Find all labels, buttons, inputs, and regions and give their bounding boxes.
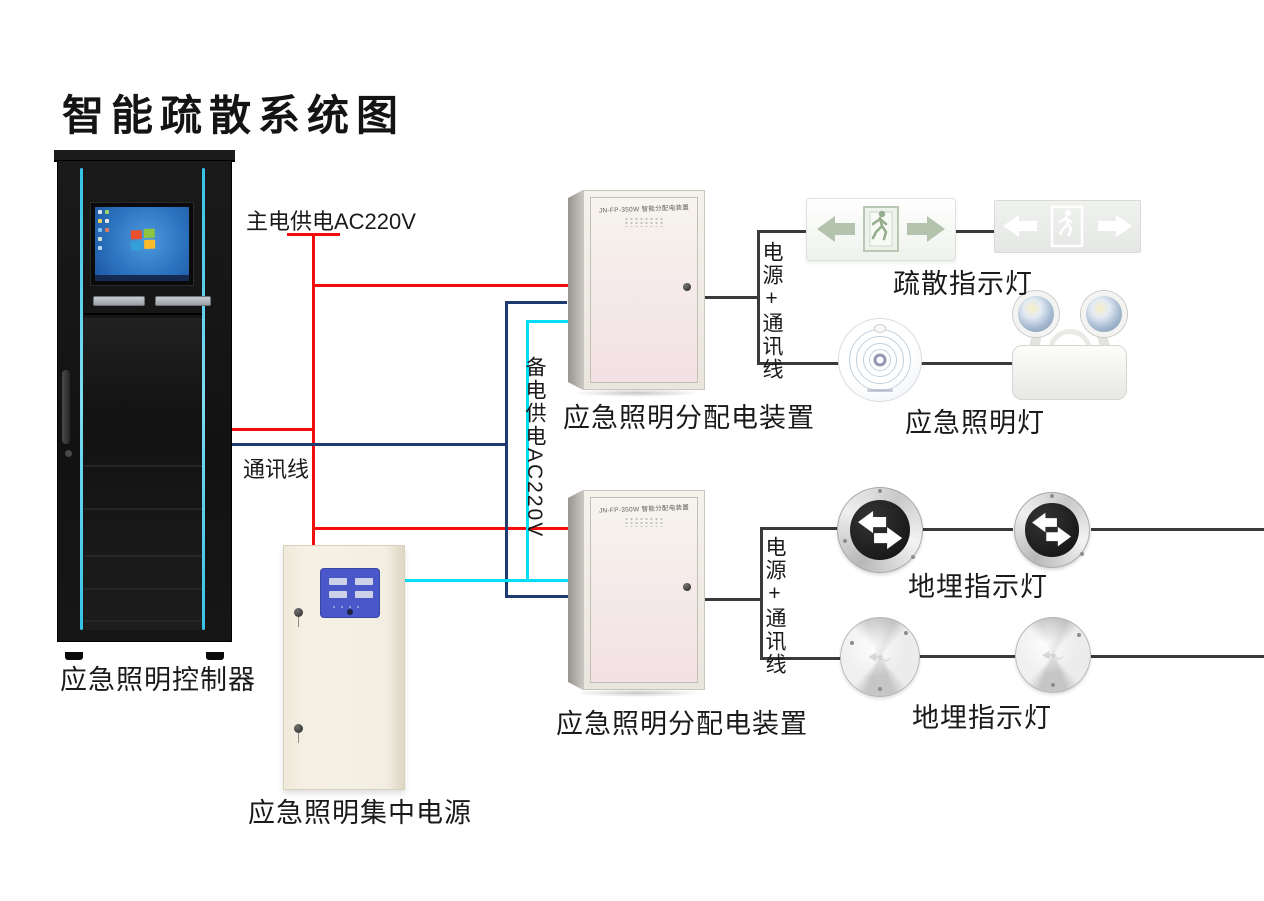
emergency-lighting-controller	[57, 150, 232, 652]
lamp-sensor	[874, 324, 887, 333]
distribution-box-2: JN-FP-350W 智能分配电装置	[568, 490, 705, 690]
emergency-lamps-label: 应急照明灯	[905, 401, 1045, 440]
windows-logo-icon	[131, 229, 157, 252]
cabinet-screen-bezel	[90, 202, 194, 286]
round-emergency-lamp	[838, 318, 922, 402]
lamp-center-hub	[874, 354, 887, 367]
lamp-brand-mark	[867, 389, 893, 392]
page-title: 智能疏散系统图	[62, 82, 405, 143]
exit-signs-label: 疏散指示灯	[893, 262, 1033, 301]
cabinet-glass-door	[83, 318, 203, 630]
exit-sign-2-graphic	[995, 201, 1140, 252]
ground-lights-row1-label: 地埋指示灯	[908, 565, 1048, 604]
running-man-icon	[1060, 210, 1071, 235]
distribution-box-1-label: 应急照明分配电装置	[563, 396, 815, 435]
main-power-wire-to-box1	[312, 284, 570, 287]
distribution-box-2-label: 应急照明分配电装置	[556, 702, 808, 741]
bus1-label: 电源+通讯线	[761, 241, 782, 381]
psu-button	[347, 609, 353, 615]
comm-wire-to-box2	[505, 595, 569, 598]
ground-light-steel-2	[1015, 617, 1091, 693]
ground2-continuation-line	[1091, 655, 1264, 658]
bus2-stem-line	[703, 598, 761, 601]
comm-wire-to-box1	[505, 301, 567, 304]
ground2-link-line	[919, 655, 1015, 658]
ground-light-steel-1	[840, 617, 920, 697]
bus2-to-ground1-line	[760, 527, 838, 530]
ground-light-arrow-1	[837, 487, 923, 573]
etched-arrow-icon	[1036, 640, 1069, 670]
exit-sign-2	[994, 200, 1141, 253]
ground-light-arrow-2	[1014, 492, 1090, 568]
backup-wire-to-box1	[526, 320, 568, 323]
psu-lock-lower	[294, 724, 303, 733]
ground1-link-line	[921, 528, 1013, 531]
main-power-wire-vertical	[312, 233, 315, 547]
controller-label: 应急照明控制器	[60, 658, 256, 697]
twin-emergency-lamp-body	[1012, 345, 1127, 400]
arrow-right-icon	[907, 216, 945, 242]
central-power-label: 应急照明集中电源	[248, 791, 472, 830]
comm-line-label: 通讯线	[243, 452, 309, 484]
cabinet-control-panel-left	[93, 296, 145, 306]
distribution-box-2-lock	[683, 583, 691, 591]
ground-arrows-icon	[1025, 503, 1078, 556]
distribution-box-1-lock	[683, 283, 691, 291]
exit-sign-link-line	[953, 230, 996, 233]
arrow-right-icon	[1098, 215, 1132, 237]
screen-taskbar	[95, 275, 189, 281]
bus1-to-exit-sign-line	[757, 230, 808, 233]
psu-display-panel	[320, 568, 380, 618]
psu-lock-upper	[294, 608, 303, 617]
comm-wire-vertical	[505, 301, 508, 598]
lamp-link-line	[917, 362, 1013, 365]
ground-arrows-icon	[850, 500, 910, 560]
cabinet-lock	[65, 450, 72, 457]
ground-lights-row2-label: 地埋指示灯	[912, 696, 1052, 735]
backup-power-label: 备电供电AC220V	[524, 356, 545, 538]
arrow-left-icon	[1003, 215, 1037, 237]
arrow-left-icon	[817, 216, 855, 242]
distribution-box-1: JN-FP-350W 智能分配电装置	[568, 190, 705, 390]
main-power-label: 主电供电AC220V	[246, 204, 416, 236]
cabinet-door-handle	[62, 370, 70, 444]
twin-lamp-head-right	[1081, 291, 1127, 337]
cabinet-control-panel-right	[155, 296, 211, 306]
main-power-wire-to-cabinet	[229, 428, 315, 431]
evacuation-system-diagram: 智能疏散系统图 主电供电AC220V 通讯线 备电供电AC220V	[0, 0, 1264, 901]
bus2-label: 电源+通讯线	[764, 536, 785, 676]
etched-arrow-icon	[862, 641, 897, 673]
distribution-box-1-marks	[624, 217, 664, 227]
ground1-continuation-line	[1091, 528, 1264, 531]
distribution-box-2-marks	[624, 517, 664, 527]
comm-wire-from-cabinet	[229, 443, 508, 446]
central-power-supply	[283, 545, 405, 790]
backup-wire-from-psu	[405, 579, 570, 582]
exit-sign-1-graphic	[807, 199, 955, 260]
cabinet-screen-windows-desktop	[95, 207, 189, 281]
exit-sign-1	[806, 198, 956, 261]
bus1-stem-line	[703, 296, 759, 299]
